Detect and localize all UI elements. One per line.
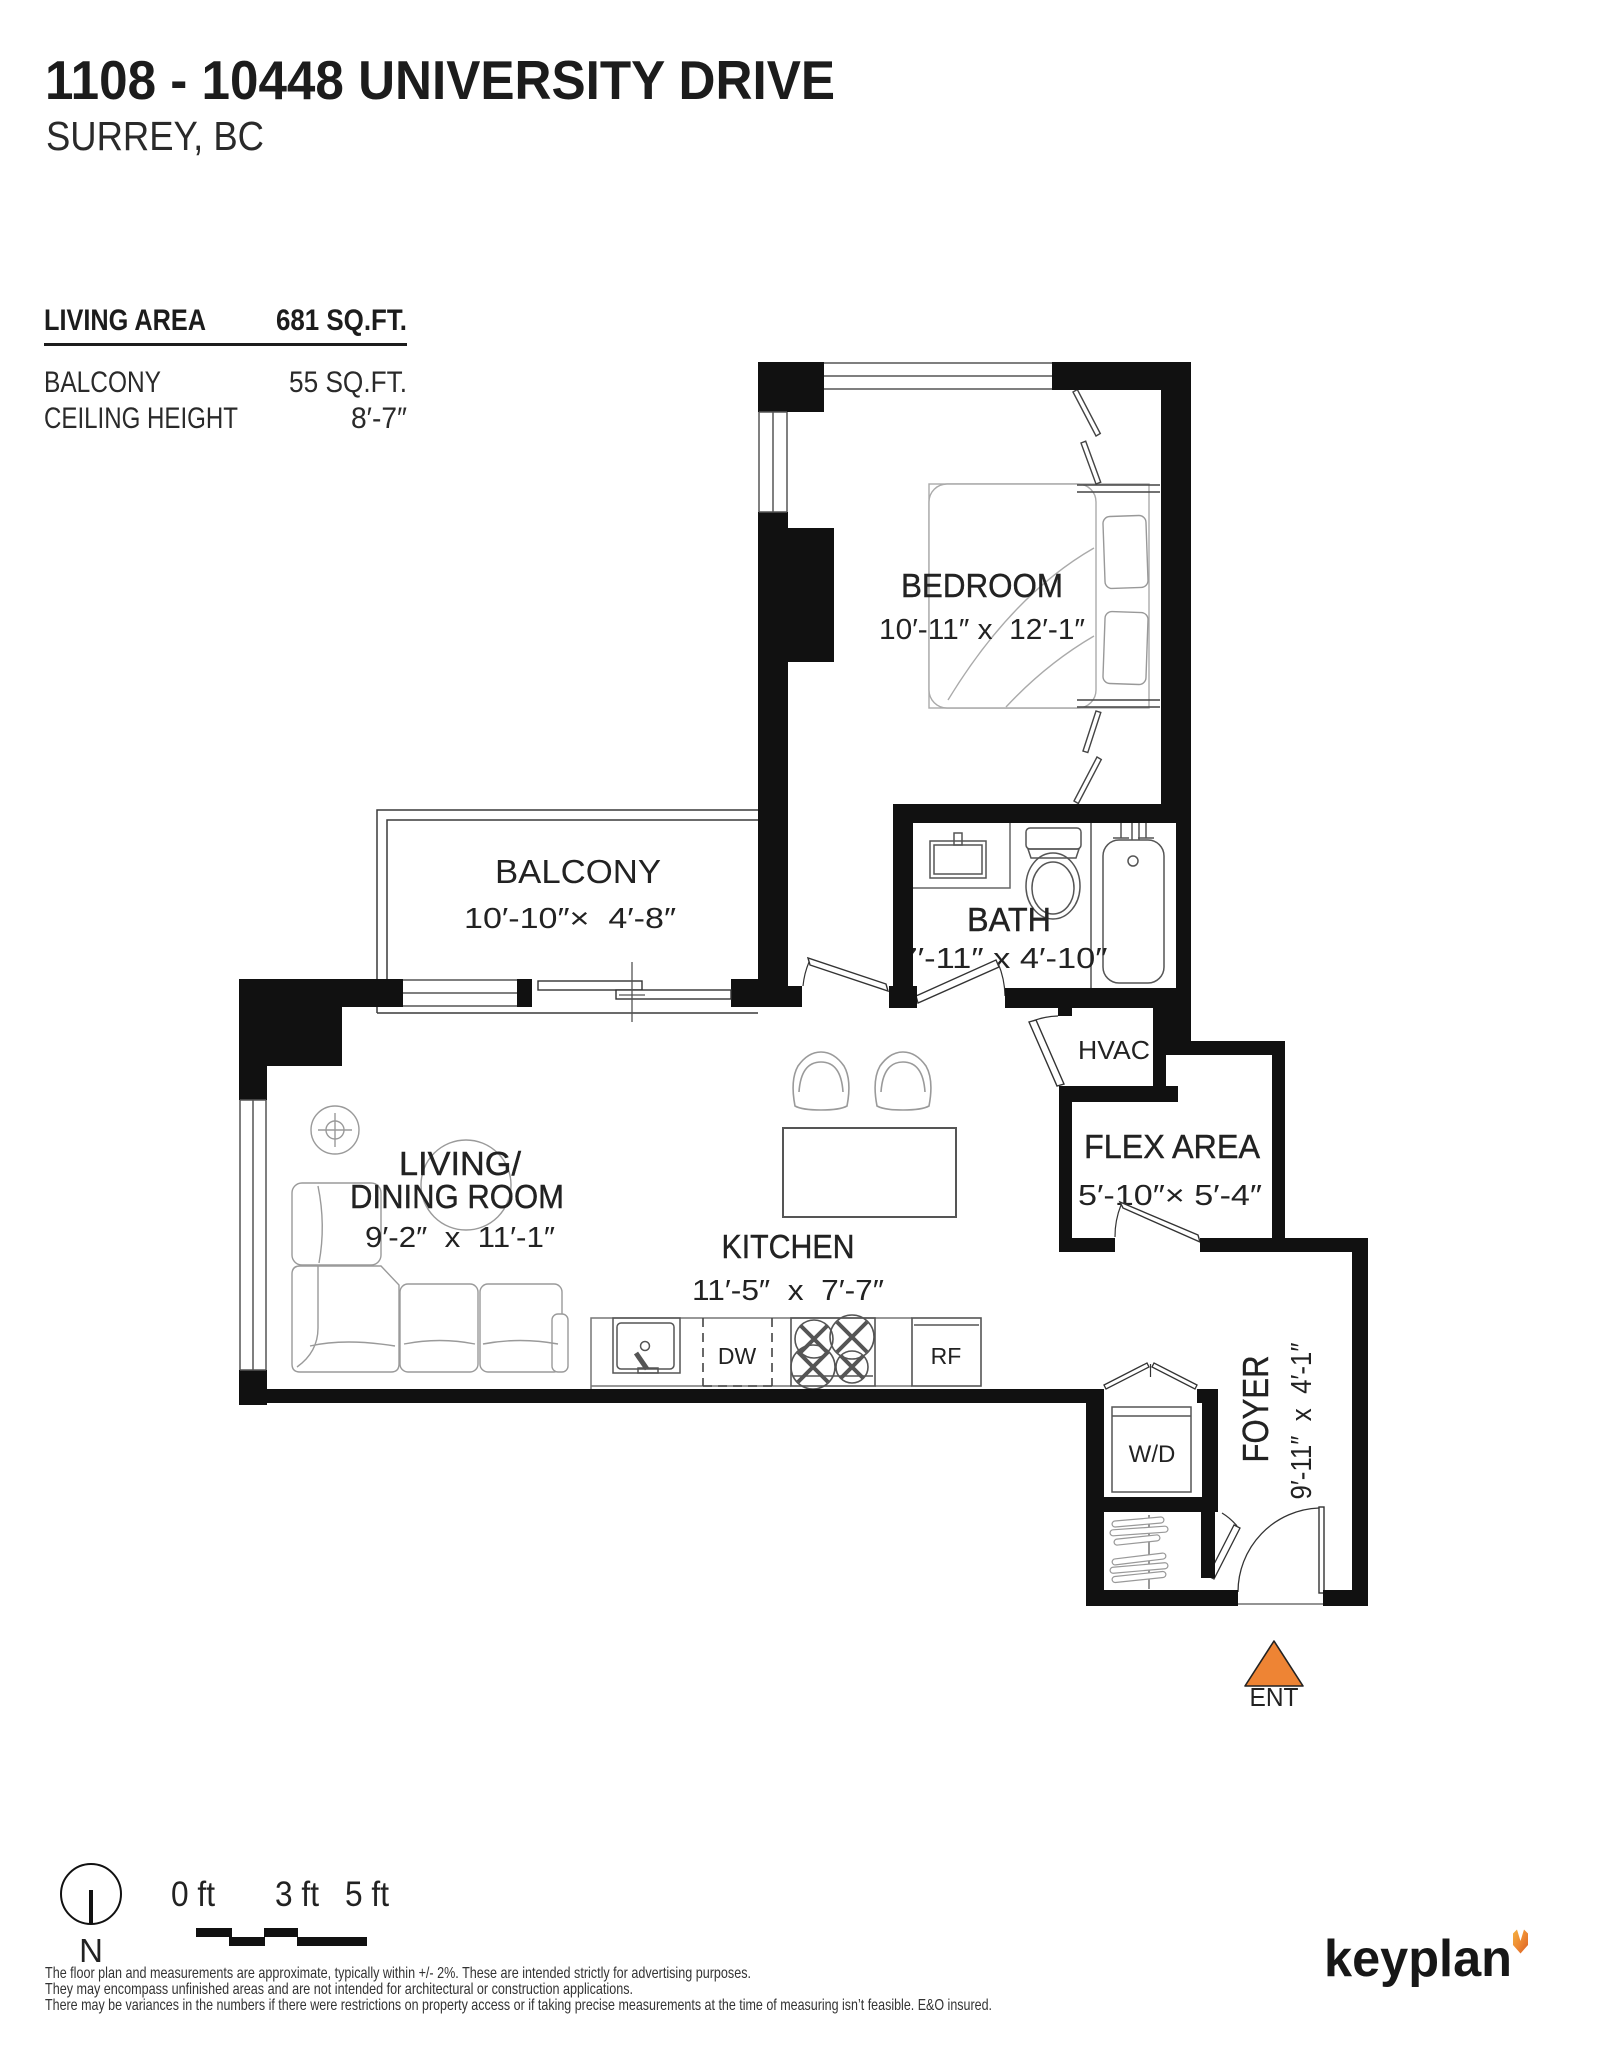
svg-text:There may be variances in the: There may be variances in the numbers if…: [45, 1997, 992, 2014]
svg-text:1108 - 10448 UNIVERSITY DRIVE: 1108 - 10448 UNIVERSITY DRIVE: [45, 49, 835, 111]
svg-text:3 ft: 3 ft: [275, 1875, 319, 1914]
svg-text:0 ft: 0 ft: [171, 1875, 215, 1914]
svg-text:8′-7″: 8′-7″: [351, 402, 407, 435]
svg-text:5 ft: 5 ft: [345, 1875, 389, 1914]
svg-text:7′-11″ x 4′-10″: 7′-11″ x 4′-10″: [899, 943, 1108, 975]
svg-text:CEILING HEIGHT: CEILING HEIGHT: [44, 402, 238, 435]
svg-text:The floor plan and measurement: The floor plan and measurements are appr…: [45, 1965, 751, 1982]
svg-text:9′-11″ x 4′-1″: 9′-11″ x 4′-1″: [1286, 1343, 1318, 1500]
svg-text:BATH: BATH: [967, 901, 1051, 938]
svg-text:They may encompass unfinished: They may encompass unfinished areas and …: [45, 1981, 633, 1998]
svg-text:11′-5″ x 7′-7″: 11′-5″ x 7′-7″: [692, 1275, 884, 1307]
svg-text:ENT: ENT: [1250, 1682, 1299, 1712]
svg-text:RF: RF: [931, 1343, 962, 1369]
svg-text:SURREY, BC: SURREY, BC: [46, 113, 264, 159]
svg-text:55 SQ.FT.: 55 SQ.FT.: [289, 366, 407, 399]
svg-text:BALCONY: BALCONY: [44, 366, 161, 399]
svg-text:10′-10″× 4′-8″: 10′-10″× 4′-8″: [464, 903, 676, 935]
svg-text:5′-10″× 5′-4″: 5′-10″× 5′-4″: [1078, 1180, 1262, 1212]
svg-text:681 SQ.FT.: 681 SQ.FT.: [276, 304, 407, 337]
svg-text:HVAC: HVAC: [1078, 1035, 1150, 1065]
svg-text:LIVING AREA: LIVING AREA: [44, 304, 206, 337]
svg-text:10′-11″ x 12′-1″: 10′-11″ x 12′-1″: [879, 614, 1085, 646]
svg-text:N: N: [79, 1932, 103, 1969]
svg-text:DINING ROOM: DINING ROOM: [350, 1178, 564, 1215]
svg-text:FOYER: FOYER: [1235, 1356, 1276, 1463]
svg-text:9′-2″ x 11′-1″: 9′-2″ x 11′-1″: [365, 1222, 555, 1254]
svg-text:BEDROOM: BEDROOM: [901, 567, 1063, 604]
svg-text:keyplan: keyplan: [1324, 1930, 1512, 1988]
svg-text:FLEX AREA: FLEX AREA: [1084, 1128, 1260, 1165]
svg-text:KITCHEN: KITCHEN: [722, 1228, 855, 1265]
svg-text:LIVING/: LIVING/: [399, 1145, 522, 1182]
svg-text:DW: DW: [718, 1343, 757, 1369]
svg-text:BALCONY: BALCONY: [495, 853, 661, 890]
svg-text:W/D: W/D: [1129, 1441, 1176, 1468]
